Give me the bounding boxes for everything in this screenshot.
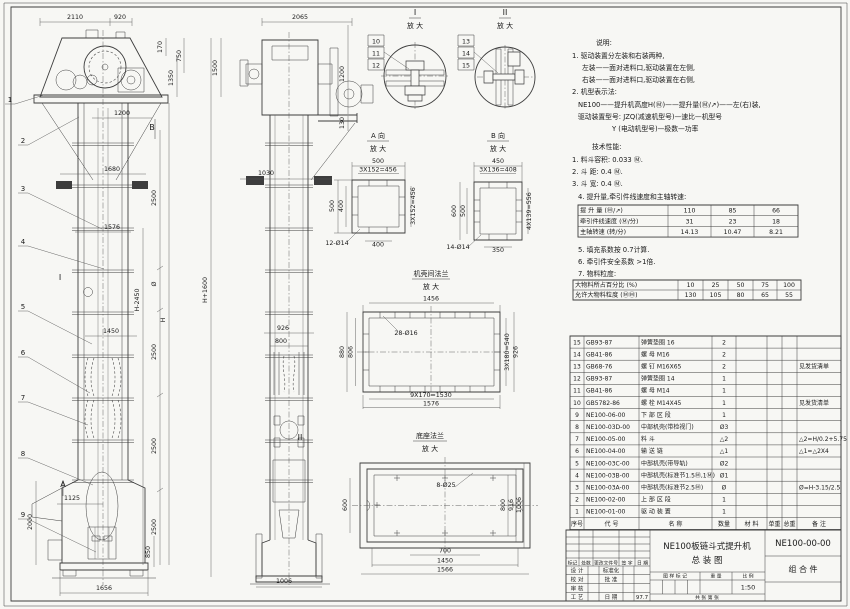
bom-cell: 1 [722,412,726,419]
callout-number: 10 [372,38,380,45]
dim-label: 1200 [339,66,346,82]
bom-cell: 6 [575,448,579,455]
tb-cell: 日 期 [605,594,618,601]
bom-cell: 驱 动 装 置 [641,508,671,516]
dim-label: 806 [348,346,355,358]
balloon-number: 3 [21,185,25,193]
note-line: 4. 提升量,牵引件线速度和主轴转速: [578,192,686,201]
capacity-cell: 85 [729,208,737,215]
base-detail-sub: 放 大 [422,444,438,453]
bom-cell: 序号 [571,520,583,528]
bom-cell: 料 斗 [641,435,655,443]
dim-label: 2110 [67,14,83,21]
note-line: NE100——提升机高度H(Ⓜ)——提升量(Ⓜ/↗)——左(右)装, [578,100,761,109]
view-a-sub: 放 大 [370,144,386,153]
boxed-callouts: 101112131415 [368,35,498,73]
dim-label: 450 [492,158,504,165]
bom-cell: 4 [575,472,579,479]
dim-label: 400 [372,242,384,249]
flange-detail-label: 机壳间法兰 [414,269,449,278]
bom-cell: GB41-86 [586,388,612,395]
capacity-table: 提 升 量 (Ⓜ/↗)1108566牵引件线速度 (Ⓜ/分)312318主轴转速… [578,205,798,237]
bom-cell: 2 [575,497,579,504]
dim-label: 500 [372,158,384,165]
balloon-number: 4 [21,238,26,246]
bom-cell: NE100-04-00 [586,448,626,455]
dim-label: 700 [439,548,451,555]
dim-label: 500 [460,205,467,217]
callout-number: 11 [372,50,380,57]
bom-cell: △1 [720,448,729,455]
dim-label: 500 [329,200,336,212]
dim-label: 1566 [437,567,453,574]
dim-label: H+1600 [202,277,209,303]
bom-cell: 见发货清单 [799,362,829,370]
dim-label: 130 [339,117,346,129]
bom-cell: NE100-06-00 [586,412,626,419]
dim-label: 2500 [151,190,158,206]
bom-cell: Ø=H-3.15/2.5 [799,484,841,491]
dim-label: 1680 [104,166,120,173]
dim-label: 600 [451,205,458,217]
capacity-cell: 18 [772,218,780,225]
balloon-number: 1 [8,96,12,104]
bom-cell: 数量 [718,520,730,528]
bom-cell: 备 注 [812,520,826,528]
detail-ii-sub: 放 大 [497,21,513,30]
note-line: 7. 物料粒度: [578,269,616,278]
balloon-leader [18,357,90,393]
tb-cell: 1:50 [741,584,756,592]
bom-cell: Ø2 [720,460,729,467]
sheet-frame [4,3,847,606]
bom-cell: 下 部 区 段 [641,411,671,419]
flange-detail-sub: 放 大 [423,282,439,291]
bom-cell: NE100-03C-00 [586,460,630,467]
tb-cell: 设 计 [571,567,584,575]
bom-cell: NE100-05-00 [586,436,626,443]
note-line: Y (电动机型号)—极数—功率 [611,124,699,133]
dim-label: 28-Ø16 [394,329,417,337]
tb-title-line1: NE100板链斗式提升机 [663,541,751,552]
bom-cell: GB41-86 [586,351,612,358]
dim-label: H [160,317,167,322]
dim-label: 1576 [104,224,120,231]
bom-cell: 代 号 [605,520,619,528]
bom-cell: 中部机壳(标准节1.5Ⓜ,1Ⓜ) [641,471,715,479]
dim-label: 2500 [151,438,158,454]
bom-cell: NE100-03B-00 [586,472,630,479]
particle-cell: 100 [783,282,795,289]
dim-label: 2000 [27,514,34,530]
bom-cell: 1 [722,497,726,504]
dim-label: H-2450 [134,288,141,311]
section-marker: A [60,480,66,489]
callout-number: 13 [462,38,470,45]
note-line: 技术性能: [592,142,621,151]
particle-cell: 55 [785,292,793,299]
bom-cell: 1 [722,388,726,395]
bom-cell: 5 [575,460,579,467]
base-detail-label: 底座法兰 [416,431,444,440]
bom-cell: Ø1 [720,472,729,479]
tb-cell: 工 艺 [571,594,584,601]
dim-label: 3X152=456 [359,167,397,174]
dim-label: 750 [176,50,183,62]
dim-label: 920 [114,14,126,21]
detail-ii [475,18,535,109]
tb-cell: 更改文件号 [594,560,618,567]
bom-cell: 1 [722,509,726,516]
particle-cell: 50 [737,282,745,289]
section-markers: BAIII [59,123,303,489]
note-line: 6. 牵引件安全系数 >1倍. [578,257,655,266]
bom-cell: 螺 栓 M14X45 [641,399,682,407]
balloon-number: 8 [21,450,25,458]
bom-cell: 9 [575,412,579,419]
note-line: 5. 填充系数按 0.7计算. [578,245,649,254]
callout-number: 15 [462,62,470,69]
view-b-detail [460,141,528,247]
callout-leader [474,52,498,73]
note-line: 右装——面对进料口,驱动装置在右侧, [582,75,695,84]
detail-i [381,18,449,110]
dim-label: 8-Ø25 [436,481,455,489]
dim-label: 9X170=1530 [410,392,452,399]
bom-cell: 2 [722,339,726,346]
bom-cell: 1 [722,376,726,383]
capacity-cell: 31 [686,218,694,225]
tb-cell: 97.7 [636,595,649,601]
bom-cell: 输 送 链 [641,447,663,455]
bom-cell: NE100-01-00 [586,509,626,516]
dim-label: 916 [508,499,515,511]
bom-cell: NE100-03A-00 [586,484,629,491]
dim-label: 14-Ø14 [446,243,469,251]
particle-cell: 75 [761,282,769,289]
balloon-leader [18,402,88,425]
bom-cell: NE100-02-00 [586,497,626,504]
capacity-cell: 主轴转速 (转/分) [580,228,626,236]
tb-title-line2: 总 装 图 [692,555,723,566]
bom-cell: GB93-87 [586,339,612,346]
capacity-cell: 110 [684,208,696,215]
tb-drawing-number: NE100-00-00 [775,539,831,549]
dim-label: 1450 [437,558,453,565]
bom-cell: 12 [573,376,581,383]
section-marker: II [298,433,303,442]
dim-label: 3X152=456 [410,187,417,225]
dim-label: Ø [150,281,158,286]
detail-i-sub: 放 大 [407,21,423,30]
bom-table: 15GB93-87弹簧垫圈 16214GB41-86螺 母 M16213GB68… [570,336,847,530]
tb-cell: 标准化 [603,567,620,575]
capacity-cell: 10.47 [724,229,742,236]
callout-number: 14 [462,50,470,57]
particle-table: 大物料所占百分比 (%)10255075100允许大物料粒度 (ⓂⓂ)13010… [573,280,801,300]
detail-i-label: I [414,8,416,17]
dim-label: 170 [157,41,164,53]
tb-cell: 签 字 [621,560,632,567]
bom-cell: 2 [722,351,726,358]
dim-label: 400 [338,200,345,212]
particle-cell: 130 [685,292,697,299]
note-line: 1. 驱动装置分左装和右装两种, [572,51,664,60]
bom-cell: 材 料 [745,520,759,528]
dim-label: 1456 [423,296,439,303]
detail-ii-label: II [503,8,508,17]
dim-label: 1450 [103,328,119,335]
bom-cell: △2=H/0.2+5.75 [799,436,847,443]
tb-cell: 批 准 [605,576,618,584]
bom-cell: 螺 母 M16 [641,350,670,358]
dim-label: 12-Ø14 [325,239,348,247]
dim-label: 926 [513,346,520,358]
dim-label: 800 [275,338,287,345]
dim-label: 3X180=540 [504,333,511,371]
balloon-number: 2 [21,137,25,145]
particle-cell: 65 [761,292,769,299]
particle-cell: 允许大物料粒度 (ⓂⓂ) [575,291,637,299]
balloon-number: 9 [21,511,25,519]
drawing-canvas: I 放 大 II 放 大 A 向 放 大 B 向 放 大 机壳间法兰 放 大 底… [0,0,850,609]
dim-label: 1656 [96,585,112,592]
note-line: 左装——面对进料口,驱动装置在左侧, [582,63,695,72]
dim-label: 2500 [151,519,158,535]
bom-cell: 弹簧垫圈 16 [641,338,675,346]
dim-label: 4X139=556 [526,192,533,230]
bom-cell: 10 [573,400,581,407]
view-b-sub: 放 大 [490,144,506,153]
section-marker: B [149,123,155,132]
bom-cell: 7 [575,436,579,443]
capacity-cell: 8.21 [769,229,783,236]
tb-cell: 校 对 [571,576,584,584]
bom-cell: 中部机壳(带检视门) [641,423,694,431]
particle-cell: 25 [712,282,720,289]
dim-label: 926 [277,325,289,332]
tb-cell: 图 样 标 记 [663,573,687,580]
tb-cell: 共 张 第 张 [695,594,719,601]
balloon-leader [18,117,79,145]
dim-label: 1030 [258,170,274,177]
side-view [240,18,373,587]
balloon-leader [18,193,102,229]
particle-cell: 80 [737,292,745,299]
balloon-leader [18,458,93,485]
capacity-cell: 23 [729,218,737,225]
view-a-detail [334,141,411,242]
callout-number: 12 [372,62,380,69]
bom-cell: GB5782-86 [586,400,620,407]
bom-cell: GB93-87 [586,376,612,383]
balloon-callouts: 123456789 [5,95,104,552]
capacity-cell: 提 升 量 (Ⓜ/↗) [580,207,623,215]
view-b-label: B 向 [491,131,505,140]
particle-cell: 大物料所占百分比 (%) [575,281,637,289]
tb-cell: 处数 [581,560,591,567]
tb-cell: 日 期 [637,561,648,567]
bom-cell: △2 [720,436,729,443]
note-line: 2. 机型表示法: [572,87,617,96]
capacity-cell: 牵引件线速度 (Ⓜ/分) [580,217,638,225]
dim-label: 800 [500,499,507,511]
note-line: 1. 料斗容积: 0.033 Ⓜ. [572,155,643,164]
bom-cell: 15 [573,339,581,346]
note-line: 说明: [596,38,612,47]
bom-cell: 13 [573,363,581,370]
bom-cell: 螺 母 M14 [641,387,670,395]
bom-cell: 11 [573,388,581,395]
dim-label: 1576 [423,401,439,408]
dim-label: 1125 [64,495,80,502]
tb-cell: 标记 [568,560,578,567]
bom-cell: 螺 钉 M16X65 [641,362,682,370]
dim-label: 1350 [168,70,175,86]
bom-cell: 中部机壳(标准节2.5Ⓜ) [641,483,703,491]
bom-cell: 弹簧垫圈 14 [641,375,675,383]
dim-label: 3X136=408 [479,167,517,174]
dim-label: 2065 [292,14,308,21]
bom-cell: 14 [573,351,581,358]
note-line: 3. 斗 宽: 0.4 Ⓜ. [572,179,623,188]
dim-label: 600 [342,499,349,511]
bom-cell: 中部机壳(带导轨) [641,459,688,467]
bom-cell: NE100-03D-00 [586,424,630,431]
bom-cell: GB68-76 [586,363,612,370]
notes-block: 说明:1. 驱动装置分左装和右装两种,左装——面对进料口,驱动装置在左侧,右装—… [572,38,761,278]
balloon-number: 5 [21,303,25,311]
tb-cell: 重 量 [710,573,721,580]
drawing-sheet: I 放 大 II 放 大 A 向 放 大 B 向 放 大 机壳间法兰 放 大 底… [0,0,850,609]
bom-cell: Ø [722,484,727,491]
balloon-leader [18,246,104,269]
note-line: 2. 斗 距: 0.4 Ⓜ. [572,168,623,176]
bom-cell: 8 [575,424,579,431]
particle-cell: 105 [710,292,722,299]
dim-label: 1500 [212,60,219,76]
view-a-label: A 向 [371,131,385,140]
bom-cell: 总重 [783,520,795,528]
dim-label: 350 [492,247,504,254]
dim-label: 1006 [276,578,292,585]
section-marker: I [59,273,61,282]
tb-cell: 比 例 [742,573,753,580]
capacity-cell: 14.13 [681,229,699,236]
tb-part-type: 组 合 件 [788,564,817,574]
bom-cell: 2 [722,363,726,370]
tb-cell: 审 核 [571,585,584,593]
balloon-number: 6 [21,349,26,357]
front-view [32,18,221,596]
bom-cell: 名 称 [669,520,683,528]
bom-cell: 1 [575,509,579,516]
note-line: 驱动装置型号: JZQ(减速机型号)—速比—机型号 [578,112,722,121]
bom-cell: △1=△2X4 [799,448,829,455]
bom-cell: 1 [722,400,726,407]
dim-label: 2500 [151,344,158,360]
particle-cell: 10 [687,282,695,289]
dim-label: 1006 [516,497,523,513]
balloon-number: 7 [21,394,25,402]
dim-label: 880 [339,346,346,358]
balloon-leader [18,311,92,344]
capacity-cell: 66 [772,208,780,215]
bom-cell: 见发货清单 [799,399,829,407]
dim-label: 1200 [114,110,130,117]
bom-cell: Ø3 [720,424,729,431]
bom-cell: 上 部 区 段 [641,496,671,504]
dim-label: 850 [145,546,152,558]
bom-cell: 3 [575,484,579,491]
bom-cell: 单重 [768,520,780,528]
